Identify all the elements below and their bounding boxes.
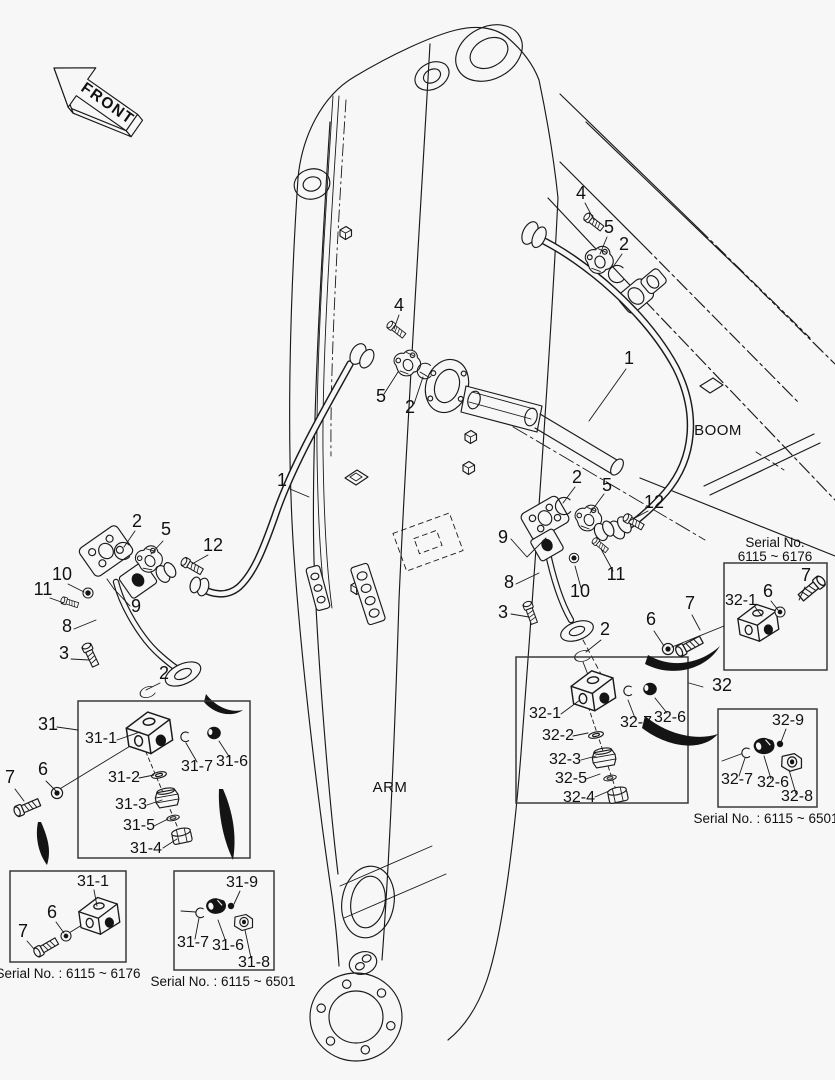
callout-32-2: 32-2 <box>542 727 574 744</box>
callout-31-8-late: 31-8 <box>238 954 270 971</box>
steel-pipe-right <box>547 549 571 620</box>
front-direction-arrow: FRONT <box>54 68 143 137</box>
callout-6-left: 6 <box>38 759 48 779</box>
callout-1-boom-hose: 1 <box>624 348 634 368</box>
callout-31-2: 31-2 <box>108 769 140 786</box>
callout-10-left: 10 <box>52 564 72 584</box>
hose-arm-line <box>201 364 350 594</box>
callout-31-6: 31-6 <box>216 753 248 770</box>
callout-7-left: 7 <box>5 767 15 787</box>
serial-range-upper-right: 6115 ~ 6176 <box>738 549 812 564</box>
serial-title-upper-right: Serial No. <box>745 535 804 550</box>
boom-structure <box>548 94 835 556</box>
callout-3-right: 3 <box>498 602 508 622</box>
callout-32-1-early: 32-1 <box>725 592 757 609</box>
callout-11-right: 11 <box>607 564 626 584</box>
callout-32-3: 32-3 <box>549 751 581 768</box>
callout-2-boom: 2 <box>619 234 629 254</box>
callout-32-7: 32-7 <box>620 714 652 731</box>
callout-9-left: 9 <box>131 596 141 616</box>
arm-foot-flange <box>310 973 402 1061</box>
callout-9-right: 9 <box>498 527 508 547</box>
callout-32-group: 32 <box>712 675 732 695</box>
callout-12-left: 12 <box>203 535 223 555</box>
serial-caption-bottom-middle: Serial No. : 6115 ~ 6501 <box>151 974 296 989</box>
callout-5-left: 5 <box>161 519 171 539</box>
steel-pipe-left <box>116 582 178 669</box>
callout-31-6-late: 31-6 <box>212 937 244 954</box>
callout-32-6: 32-6 <box>654 709 686 726</box>
callout-12-right: 12 <box>644 492 664 512</box>
exploded-parts-diagram: FRONT BOOM ARM 4 5 2 1 4 5 2 1 2 5 12 9 … <box>0 0 835 1080</box>
callout-32-5: 32-5 <box>555 770 587 787</box>
inset-31-late-parts <box>181 896 253 931</box>
callout-31-4: 31-4 <box>130 840 162 857</box>
callout-4-arm: 4 <box>394 295 404 315</box>
callout-6-right: 6 <box>646 609 656 629</box>
callout-32-7-late: 32-7 <box>721 771 753 788</box>
callout-2-left-lower: 2 <box>159 663 169 683</box>
callout-3-left: 3 <box>59 643 69 663</box>
callout-6-early: 6 <box>763 581 773 601</box>
callout-5-boom: 5 <box>604 217 614 237</box>
front-label: FRONT <box>78 79 138 128</box>
callout-8-right: 8 <box>504 572 514 592</box>
serial-caption-lower-right: Serial No. : 6115 ~ 6501 <box>694 811 835 826</box>
callout-31-1: 31-1 <box>85 730 117 747</box>
fitting-group-arm-top <box>386 320 431 379</box>
callout-32-9-late: 32-9 <box>772 712 804 729</box>
parts-diagram-page: FRONT BOOM ARM 4 5 2 1 4 5 2 1 2 5 12 9 … <box>0 0 835 1080</box>
callout-32-8-late: 32-8 <box>781 788 813 805</box>
callout-31-5: 31-5 <box>123 817 155 834</box>
callout-31-1-early: 31-1 <box>77 873 109 890</box>
serial-caption-bottom-left: Serial No. : 6115 ~ 6176 <box>0 966 140 981</box>
inset-32-early-parts <box>662 574 827 657</box>
callout-31-7: 31-7 <box>181 758 213 775</box>
callout-7-early: 7 <box>801 565 811 585</box>
callout-32-1: 32-1 <box>529 705 561 722</box>
arm-structure <box>290 14 558 1061</box>
callout-31-group: 31 <box>38 714 58 734</box>
callout-1-arm-hose: 1 <box>277 470 287 490</box>
callout-6-early-left: 6 <box>47 902 57 922</box>
boom-label: BOOM <box>694 422 742 439</box>
callout-7-early-left: 7 <box>18 921 28 941</box>
callout-31-7-late: 31-7 <box>177 934 209 951</box>
callout-4-boom: 4 <box>576 183 586 203</box>
callout-5-right: 5 <box>602 475 612 495</box>
callout-2-right: 2 <box>572 467 582 487</box>
callout-10-right: 10 <box>570 581 590 601</box>
arm-label: ARM <box>373 779 408 796</box>
callout-8-left: 8 <box>62 616 72 636</box>
callout-11-left: 11 <box>34 579 53 599</box>
callout-5-arm: 5 <box>376 386 386 406</box>
callout-31-9-late: 31-9 <box>226 874 258 891</box>
callout-7-right: 7 <box>685 593 695 613</box>
inset-31-early-parts <box>32 895 121 958</box>
callout-31-3: 31-3 <box>115 796 147 813</box>
callout-2-arm: 2 <box>405 397 415 417</box>
callout-2-left: 2 <box>132 511 142 531</box>
callout-2-right-lower: 2 <box>600 619 610 639</box>
inset-32-late-parts <box>722 735 801 771</box>
callout-32-4: 32-4 <box>563 789 595 806</box>
